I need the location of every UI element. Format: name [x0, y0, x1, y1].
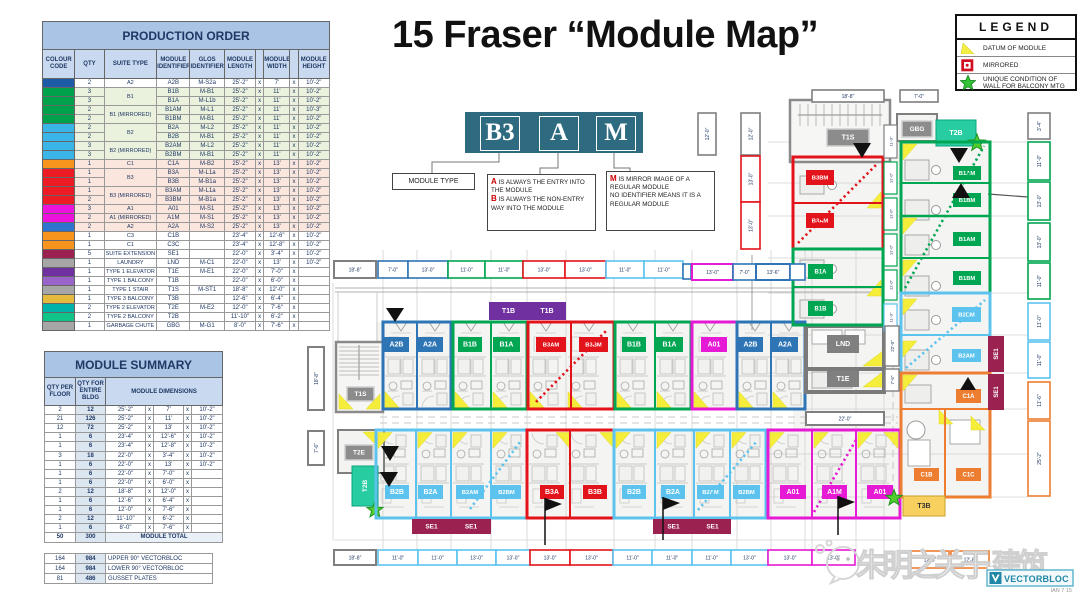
svg-text:A01: A01	[708, 342, 721, 349]
svg-text:B3BM: B3BM	[812, 176, 829, 182]
svg-text:T1B: T1B	[502, 308, 515, 315]
svg-text:A2B: A2B	[743, 342, 757, 349]
svg-text:SE1: SE1	[465, 524, 478, 531]
svg-text:B1BM: B1BM	[959, 198, 976, 204]
svg-text:12'-0": 12'-0"	[705, 127, 711, 140]
svg-text:T1B: T1B	[540, 308, 553, 315]
svg-text:11'-0": 11'-0"	[431, 556, 444, 562]
svg-text:A01: A01	[787, 489, 800, 496]
svg-text:11'-0": 11'-0"	[1037, 155, 1043, 168]
svg-text:B1BM: B1BM	[959, 276, 976, 282]
svg-text:13'-0": 13'-0"	[749, 172, 755, 185]
svg-text:13'-0": 13'-0"	[470, 556, 483, 562]
svg-text:B3A: B3A	[545, 489, 559, 496]
svg-text:B1B: B1B	[814, 307, 827, 313]
svg-text:11'-0": 11'-0"	[498, 268, 511, 274]
svg-text:11'-0": 11'-0"	[889, 244, 894, 254]
svg-text:11'-0": 11'-0"	[889, 208, 894, 218]
svg-text:11'-0": 11'-0"	[705, 556, 718, 562]
svg-text:B2B: B2B	[390, 489, 404, 496]
svg-text:B1B: B1B	[463, 342, 477, 349]
svg-text:B2A: B2A	[666, 489, 680, 496]
svg-text:11'-0": 11'-0"	[619, 268, 632, 274]
svg-text:B2A: B2A	[423, 489, 437, 496]
svg-text:T3B: T3B	[917, 503, 930, 510]
svg-text:A2A: A2A	[778, 342, 792, 349]
svg-text:C1C: C1C	[962, 473, 975, 479]
svg-text:13'-0": 13'-0"	[538, 268, 551, 274]
svg-text:B2B: B2B	[627, 489, 641, 496]
svg-text:B2BM: B2BM	[958, 313, 975, 319]
svg-text:11'-0": 11'-0"	[626, 556, 639, 562]
svg-text:T2B: T2B	[362, 480, 369, 493]
svg-text:SE1: SE1	[994, 386, 1000, 398]
svg-text:B1A: B1A	[662, 342, 676, 349]
svg-text:SE1: SE1	[425, 524, 438, 531]
svg-text:18'-8": 18'-8"	[349, 268, 362, 274]
svg-text:13'-0": 13'-0"	[706, 270, 719, 276]
svg-text:IAN 7 15: IAN 7 15	[1051, 588, 1072, 594]
svg-text:13'-0": 13'-0"	[784, 556, 797, 562]
svg-text:11'-0": 11'-0"	[889, 172, 894, 182]
svg-text:11'-0": 11'-0"	[889, 279, 894, 289]
svg-text:T2E: T2E	[353, 450, 366, 457]
svg-text:B1A: B1A	[814, 270, 827, 276]
svg-text:11'-0": 11'-0"	[392, 556, 405, 562]
svg-text:13'-0": 13'-0"	[743, 556, 756, 562]
svg-text:B2BM: B2BM	[738, 490, 755, 496]
svg-text:13'-0": 13'-0"	[1037, 235, 1043, 248]
svg-text:11'-0": 11'-0"	[1037, 315, 1043, 328]
svg-text:C1B: C1B	[920, 473, 933, 479]
svg-text:A01: A01	[874, 489, 887, 496]
svg-text:VECTORBLOC: VECTORBLOC	[1004, 574, 1069, 584]
svg-text:11'-0": 11'-0"	[889, 136, 894, 146]
svg-text:B3AM: B3AM	[812, 219, 829, 225]
svg-text:LND: LND	[836, 341, 850, 348]
svg-text:GBG: GBG	[910, 126, 925, 133]
svg-text:B2AM: B2AM	[462, 490, 479, 496]
svg-text:7'-0": 7'-0"	[388, 268, 398, 274]
svg-text:11'-0": 11'-0"	[1037, 354, 1043, 367]
svg-text:A2B: A2B	[389, 342, 403, 349]
svg-text:SE1: SE1	[667, 524, 680, 531]
svg-text:11'-0": 11'-0"	[1037, 275, 1043, 288]
svg-text:13'-0": 13'-0"	[579, 268, 592, 274]
svg-text:11'-0": 11'-0"	[889, 312, 894, 322]
svg-text:7'-6": 7'-6"	[314, 443, 320, 453]
svg-text:13'-0": 13'-0"	[1037, 194, 1043, 207]
svg-text:7'-0": 7'-0"	[914, 94, 924, 100]
svg-text:B1A: B1A	[499, 342, 513, 349]
svg-text:C1A: C1A	[962, 394, 975, 400]
svg-text:11'-0": 11'-0"	[666, 556, 679, 562]
svg-text:18'-8": 18'-8"	[314, 372, 320, 385]
svg-text:SE1: SE1	[706, 524, 719, 531]
svg-text:12'-0": 12'-0"	[749, 127, 755, 140]
svg-text:B3B: B3B	[588, 489, 602, 496]
svg-text:A1M: A1M	[827, 489, 842, 496]
svg-text:11'-6": 11'-6"	[1037, 394, 1043, 407]
svg-text:T2B: T2B	[949, 130, 962, 137]
svg-text:3'-4": 3'-4"	[1037, 121, 1043, 131]
svg-text:22'-0": 22'-0"	[890, 340, 895, 352]
svg-text:B3AM: B3AM	[543, 343, 560, 349]
svg-text:18'-8": 18'-8"	[349, 556, 362, 562]
svg-text:13'-0": 13'-0"	[544, 556, 557, 562]
svg-text:B1AM: B1AM	[959, 237, 976, 243]
svg-text:B2BM: B2BM	[498, 490, 515, 496]
svg-text:7'-0": 7'-0"	[740, 270, 750, 276]
svg-text:13'-6": 13'-6"	[767, 270, 780, 276]
svg-text:13'-0": 13'-0"	[422, 268, 435, 274]
svg-text:18'-8": 18'-8"	[842, 94, 855, 100]
svg-text:B2AM: B2AM	[702, 490, 719, 496]
svg-text:SE1: SE1	[994, 348, 1000, 360]
svg-text:13'-0": 13'-0"	[507, 556, 520, 562]
svg-text:25'-2": 25'-2"	[1037, 452, 1043, 465]
svg-text:T1S: T1S	[355, 391, 368, 398]
svg-text:B2AM: B2AM	[958, 354, 975, 360]
svg-text:A2A: A2A	[423, 342, 437, 349]
svg-text:22'-0": 22'-0"	[839, 417, 852, 423]
svg-text:11'-0": 11'-0"	[460, 268, 473, 274]
svg-text:13'-0": 13'-0"	[585, 556, 598, 562]
svg-text:13'-0": 13'-0"	[749, 219, 755, 232]
svg-text:7'-6": 7'-6"	[890, 375, 895, 384]
svg-text:T1S: T1S	[842, 135, 855, 142]
svg-text:B1B: B1B	[627, 342, 641, 349]
svg-text:T1E: T1E	[837, 376, 850, 383]
svg-text:11'-0": 11'-0"	[657, 268, 670, 274]
